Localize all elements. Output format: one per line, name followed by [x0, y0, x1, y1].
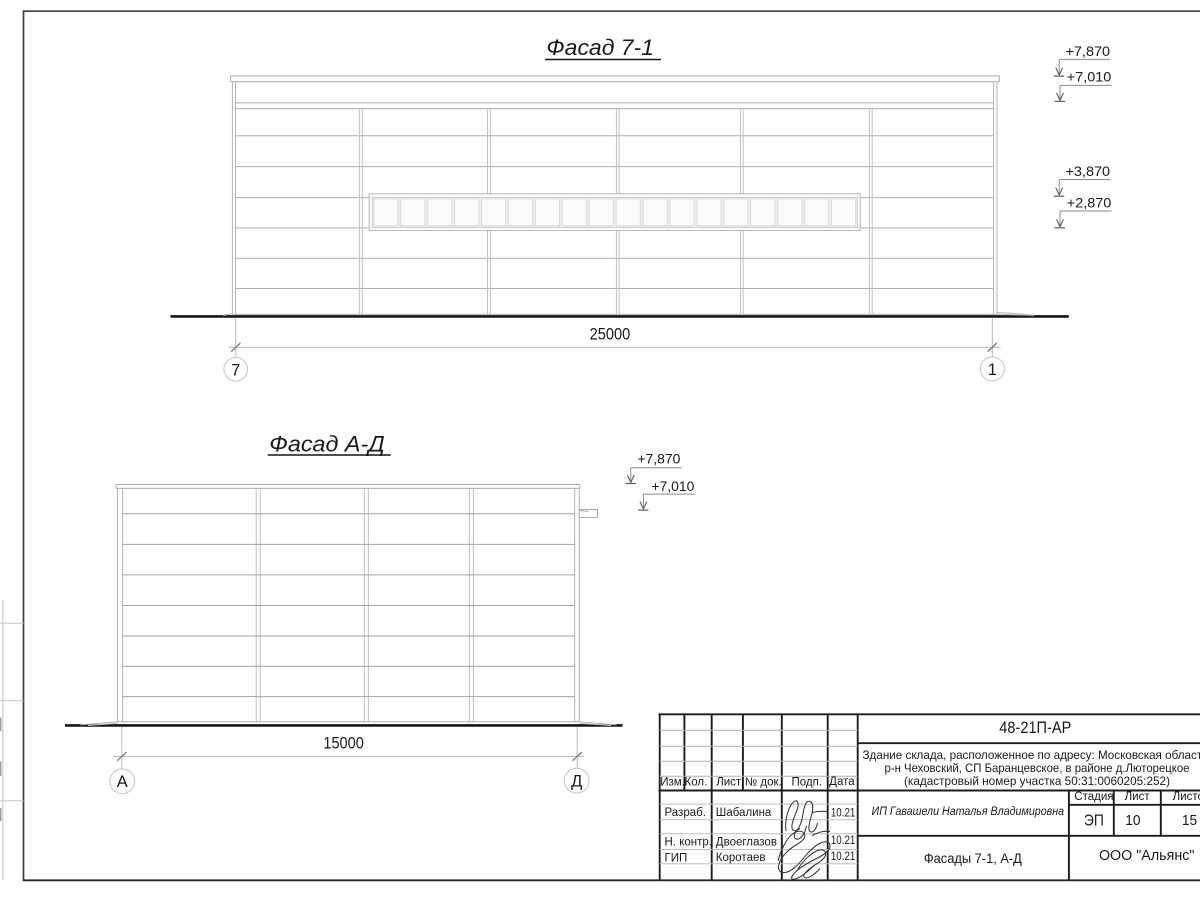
svg-text:Лист: Лист [716, 777, 742, 789]
svg-text:(кадастровый номер участка 50:: (кадастровый номер участка 50:31:0060205… [904, 775, 1170, 788]
svg-text:10.21: 10.21 [831, 851, 856, 863]
svg-text:ИП Гавашели Наталья Владимиров: ИП Гавашели Наталья Владимировна [872, 806, 1065, 818]
svg-text:Здание склада, расположенное п: Здание склада, расположенное по адресу: … [863, 749, 1200, 762]
svg-text:ЭП: ЭП [1084, 812, 1104, 829]
svg-text:48-21П-АР: 48-21П-АР [999, 718, 1071, 737]
svg-text:Д: Д [571, 773, 582, 791]
svg-text:ГИП: ГИП [665, 852, 688, 864]
svg-text:15000: 15000 [323, 734, 364, 752]
svg-text:Фасад А-Д: Фасад А-Д [269, 432, 385, 457]
svg-text:25000: 25000 [590, 325, 631, 344]
svg-text:+7,870: +7,870 [1066, 43, 1111, 59]
svg-text:Дата: Дата [829, 776, 855, 788]
svg-text:+7,870: +7,870 [637, 450, 680, 466]
svg-text:+7,010: +7,010 [1067, 69, 1112, 85]
svg-text:Кол.: Кол. [685, 777, 708, 789]
svg-text:Разраб.: Разраб. [665, 807, 706, 819]
svg-text:Двоеглазов: Двоеглазов [716, 836, 777, 848]
svg-text:15: 15 [1182, 812, 1197, 829]
svg-text:№ док.: № док. [745, 777, 782, 789]
svg-text:Фасад 7-1: Фасад 7-1 [546, 35, 654, 60]
svg-text:Шабалина: Шабалина [716, 807, 772, 819]
svg-text:+3,870: +3,870 [1066, 163, 1111, 179]
svg-text:+7,010: +7,010 [651, 478, 694, 494]
svg-text:А: А [117, 773, 128, 791]
svg-text:Листов: Листов [1173, 791, 1200, 803]
svg-text:Фасады 7-1, А-Д: Фасады 7-1, А-Д [924, 851, 1022, 866]
svg-text:Изм.: Изм. [660, 777, 685, 789]
svg-text:7: 7 [231, 361, 240, 379]
svg-text:Лист: Лист [1125, 791, 1151, 803]
svg-text:+2,870: +2,870 [1067, 195, 1112, 211]
svg-text:Коротаев: Коротаев [716, 852, 766, 864]
svg-text:Подп.: Подп. [792, 777, 823, 789]
svg-text:10: 10 [1125, 812, 1140, 829]
svg-text:Стадия: Стадия [1074, 791, 1113, 803]
svg-text:10.21: 10.21 [831, 807, 856, 819]
svg-text:Н. контр.: Н. контр. [665, 836, 712, 848]
svg-text:1: 1 [988, 361, 997, 379]
svg-text:10.21: 10.21 [831, 835, 856, 847]
svg-text:ООО "Альянс": ООО "Альянс" [1099, 848, 1195, 864]
svg-text:р-н Чеховский, СП Баранцевское: р-н Чеховский, СП Баранцевское, в районе… [885, 762, 1190, 775]
